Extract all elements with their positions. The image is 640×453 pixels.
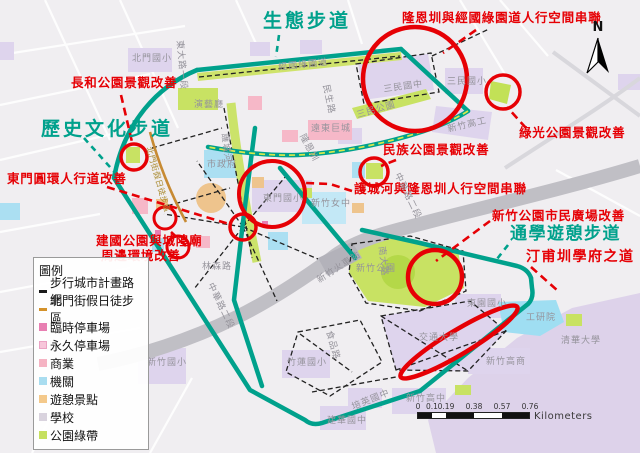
north-label: N [583, 20, 613, 35]
scale-tick: 0.1 [426, 402, 438, 411]
temp-parking-swatch [39, 323, 47, 331]
scale-ticks: 0 0.1 0.19 0.38 0.57 0.76 [410, 402, 530, 411]
scale-unit-label: Kilometers [534, 411, 593, 422]
legend-item-beimen: 北門街假日徒步區 [39, 300, 144, 318]
north-arrow: N [583, 20, 613, 81]
trail-title-commute: 通學遊憩步道 [510, 226, 621, 243]
legend-item-label: 遊憩景點 [50, 391, 98, 408]
legend-item-commerce: 商業 [39, 354, 144, 372]
scale-bar-segments [417, 412, 530, 419]
callout-lvguang-park: 綠光公園景觀改善 [519, 127, 625, 140]
label-hsinchu-elementary: 新竹國小 [147, 359, 187, 368]
label-sanmin-elementary: 三民國小 [447, 78, 487, 87]
legend-item-agency: 機關 [39, 372, 144, 390]
scale-segment [502, 413, 529, 418]
school-swatch [39, 413, 47, 421]
north-arrow-icon [583, 35, 613, 77]
callout-jianguo-park-line1: 建國公園與城隍廟 [96, 235, 202, 248]
callout-tingfu-canal: 汀甫圳學府之道 [526, 250, 635, 264]
scale-tick: 0.76 [522, 402, 539, 411]
scale-segment [418, 413, 432, 418]
label-linsen-rd: 林森路 [202, 263, 232, 272]
legend-item-label: 商業 [50, 355, 74, 372]
legend-item-label: 永久停車場 [50, 337, 110, 354]
legend-item-greenbelt: 公園綠帶 [39, 426, 144, 444]
recreation-swatch [39, 395, 47, 403]
scale-segment [446, 413, 474, 418]
callout-moat-longen: 護城河與隆恩圳人行空間串聯 [354, 183, 527, 196]
greenbelt-swatch [39, 431, 47, 439]
label-jianhua-junior-high: 建華國中 [327, 417, 367, 426]
scale-segment [432, 413, 446, 418]
label-tsinghua-univ: 清華大學 [561, 337, 601, 346]
beimen-line-swatch [39, 308, 47, 311]
network-line-swatch [39, 290, 47, 293]
callout-longen-jingguo: 隆恩圳與經國綠園道人行空間串聯 [402, 12, 602, 25]
label-dongmen-elementary: 東門國小 [263, 195, 303, 204]
agency-swatch [39, 377, 47, 385]
scale-tick: 0 [416, 402, 421, 411]
legend-item-perm-parking: 永久停車場 [39, 336, 144, 354]
label-dongyuan-elementary: 東園國小 [467, 300, 507, 309]
scale-tick: 0.19 [438, 402, 455, 411]
legend-item-label: 公園綠帶 [50, 427, 98, 444]
callout-east-gate-circle: 東門圓環人行道改善 [7, 173, 127, 186]
legend: 圖例 步行城市計畫路網 北門街假日徒步區 臨時停車場 永久停車場 商業 機關 遊… [33, 257, 149, 450]
scale-tick: 0.38 [466, 402, 483, 411]
scale-segment [474, 413, 502, 418]
commerce-swatch [39, 359, 47, 367]
scale-tick: 0.57 [494, 402, 511, 411]
legend-item-recreation: 遊憩景點 [39, 390, 144, 408]
legend-item-label: 學校 [50, 409, 74, 426]
label-chiaotung-univ: 交通大學 [419, 334, 459, 343]
callout-changhe-park: 長和公園景觀改善 [71, 77, 177, 90]
map-canvas: 生態步道 歷史文化步道 通學遊憩步道 隆恩圳與經國綠園道人行空間串聯 長和公園景… [0, 0, 640, 453]
trail-title-history: 歷史文化步道 [41, 120, 173, 139]
legend-item-school: 學校 [39, 408, 144, 426]
label-hsinchu-commercial: 新竹高商 [486, 358, 526, 367]
legend-item-label: 臨時停車場 [50, 319, 110, 336]
label-beimen-elementary: 北門國小 [132, 55, 172, 64]
trail-title-eco: 生態步道 [263, 12, 351, 31]
perm-parking-swatch [39, 341, 47, 349]
label-itri: 工研院 [526, 314, 556, 323]
label-hsinchu-park: 新竹公園 [356, 265, 396, 274]
scale-bar: 0 0.1 0.19 0.38 0.57 0.76 Kilometers [410, 402, 530, 419]
legend-item-label: 機關 [50, 373, 74, 390]
label-girls-high: 新竹女中 [311, 200, 351, 209]
label-zhulian-elementary: 竹蓮國小 [287, 359, 327, 368]
label-city-hall: 市政府 [207, 161, 237, 170]
callout-minzu-park: 民族公園景觀改善 [383, 144, 489, 157]
callout-hsinchu-park-plaza: 新竹公園市民廣場改善 [492, 210, 625, 223]
label-performance-hall: 演藝廳 [194, 101, 224, 110]
label-big-city-mall: 遠東巨城 [311, 125, 351, 134]
